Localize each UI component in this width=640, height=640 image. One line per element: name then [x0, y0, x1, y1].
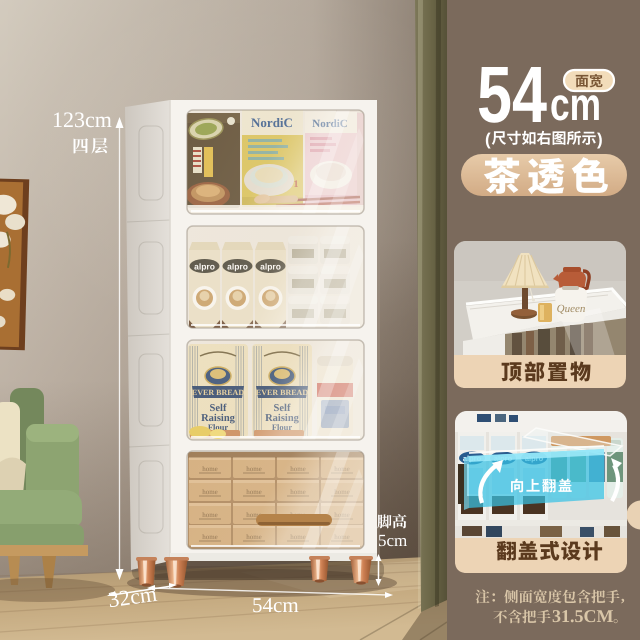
svg-text:(: (: [485, 130, 491, 149]
svg-text:,: ,: [621, 589, 625, 605]
svg-text:): ): [597, 130, 603, 149]
svg-text:54cm: 54cm: [252, 593, 299, 617]
svg-text:123cm: 123cm: [52, 107, 112, 132]
svg-text:Queen: Queen: [557, 303, 586, 315]
svg-text:31.5CM: 31.5CM: [552, 606, 614, 626]
svg-text:5cm: 5cm: [378, 531, 407, 550]
svg-text:54: 54: [477, 50, 547, 139]
